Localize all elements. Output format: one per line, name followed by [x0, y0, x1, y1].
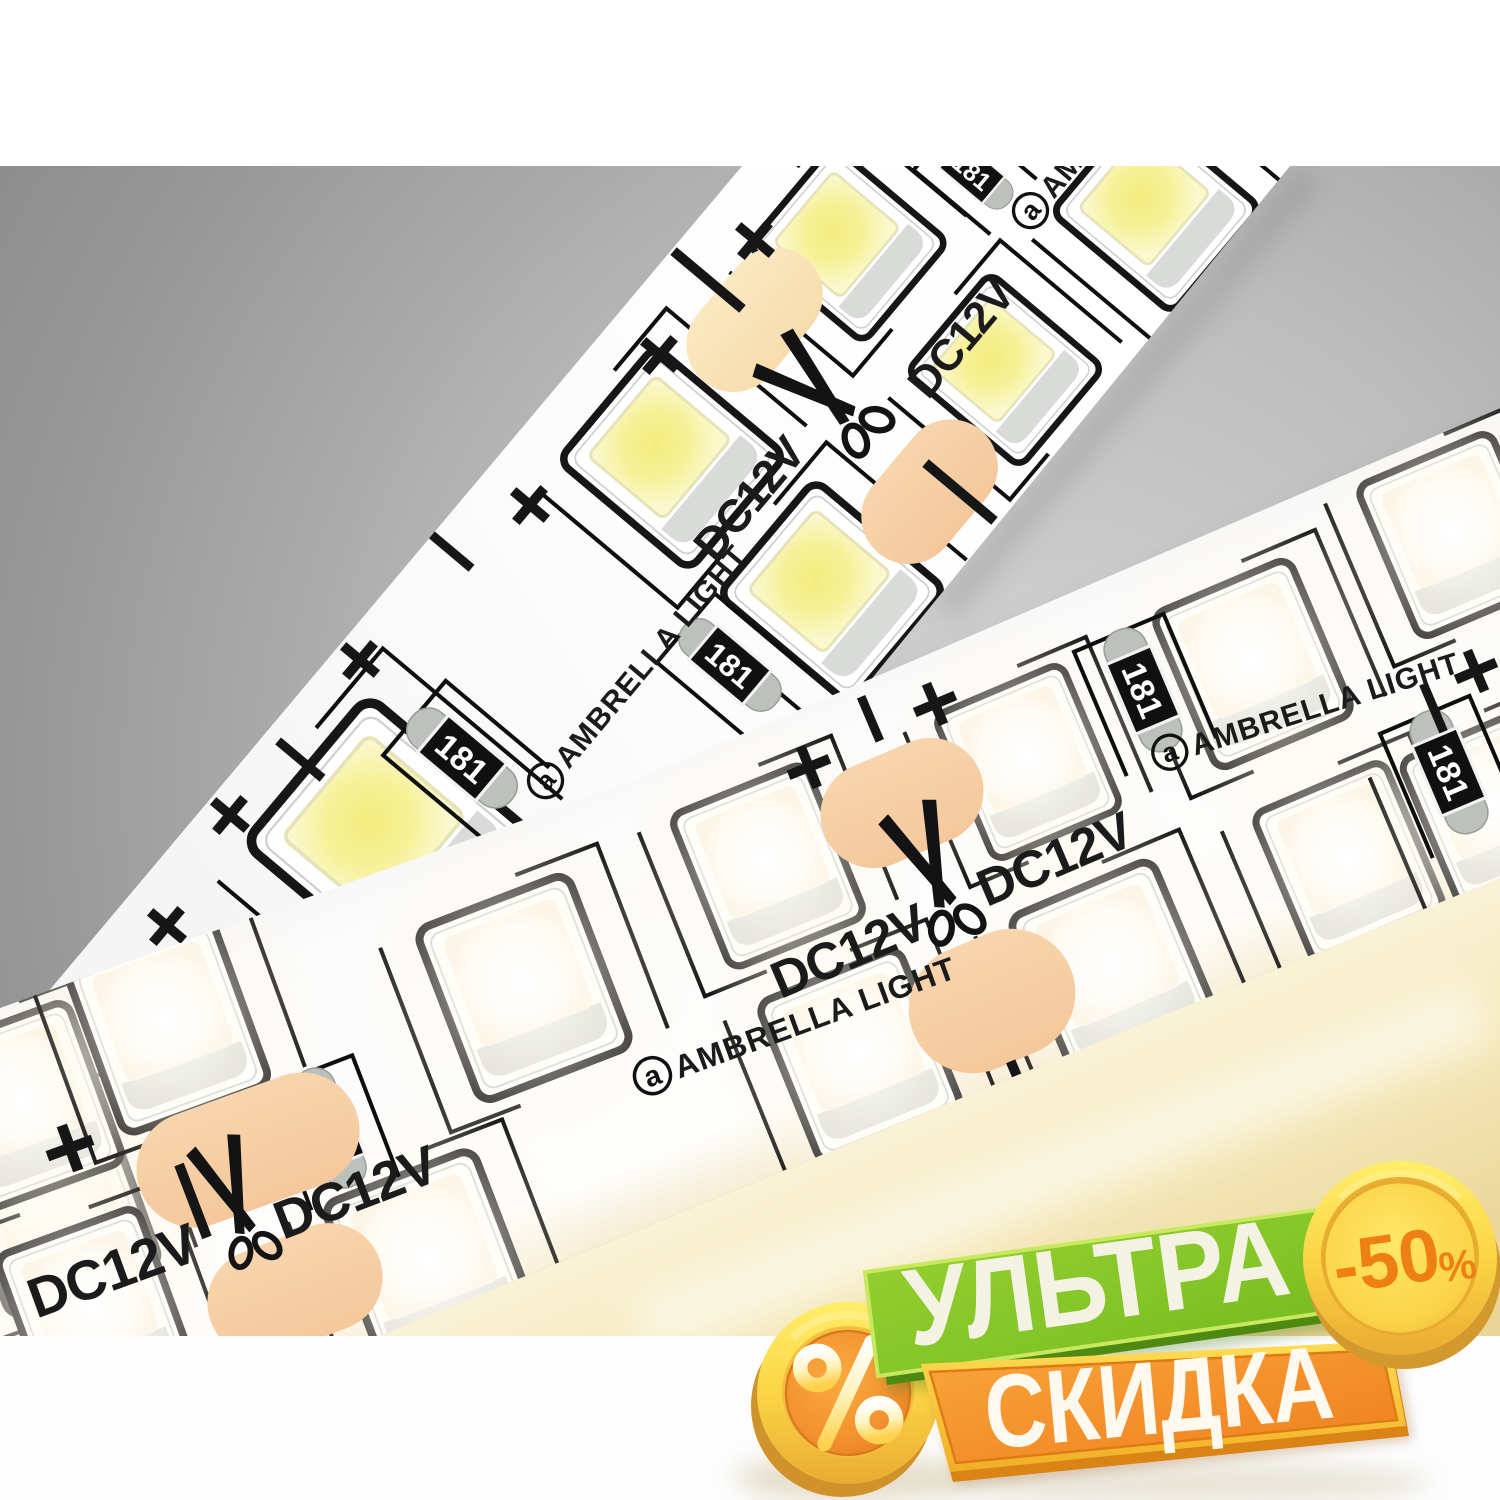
svg-text:-50: -50 [1327, 1212, 1444, 1309]
svg-text:%: % [1436, 1240, 1480, 1292]
